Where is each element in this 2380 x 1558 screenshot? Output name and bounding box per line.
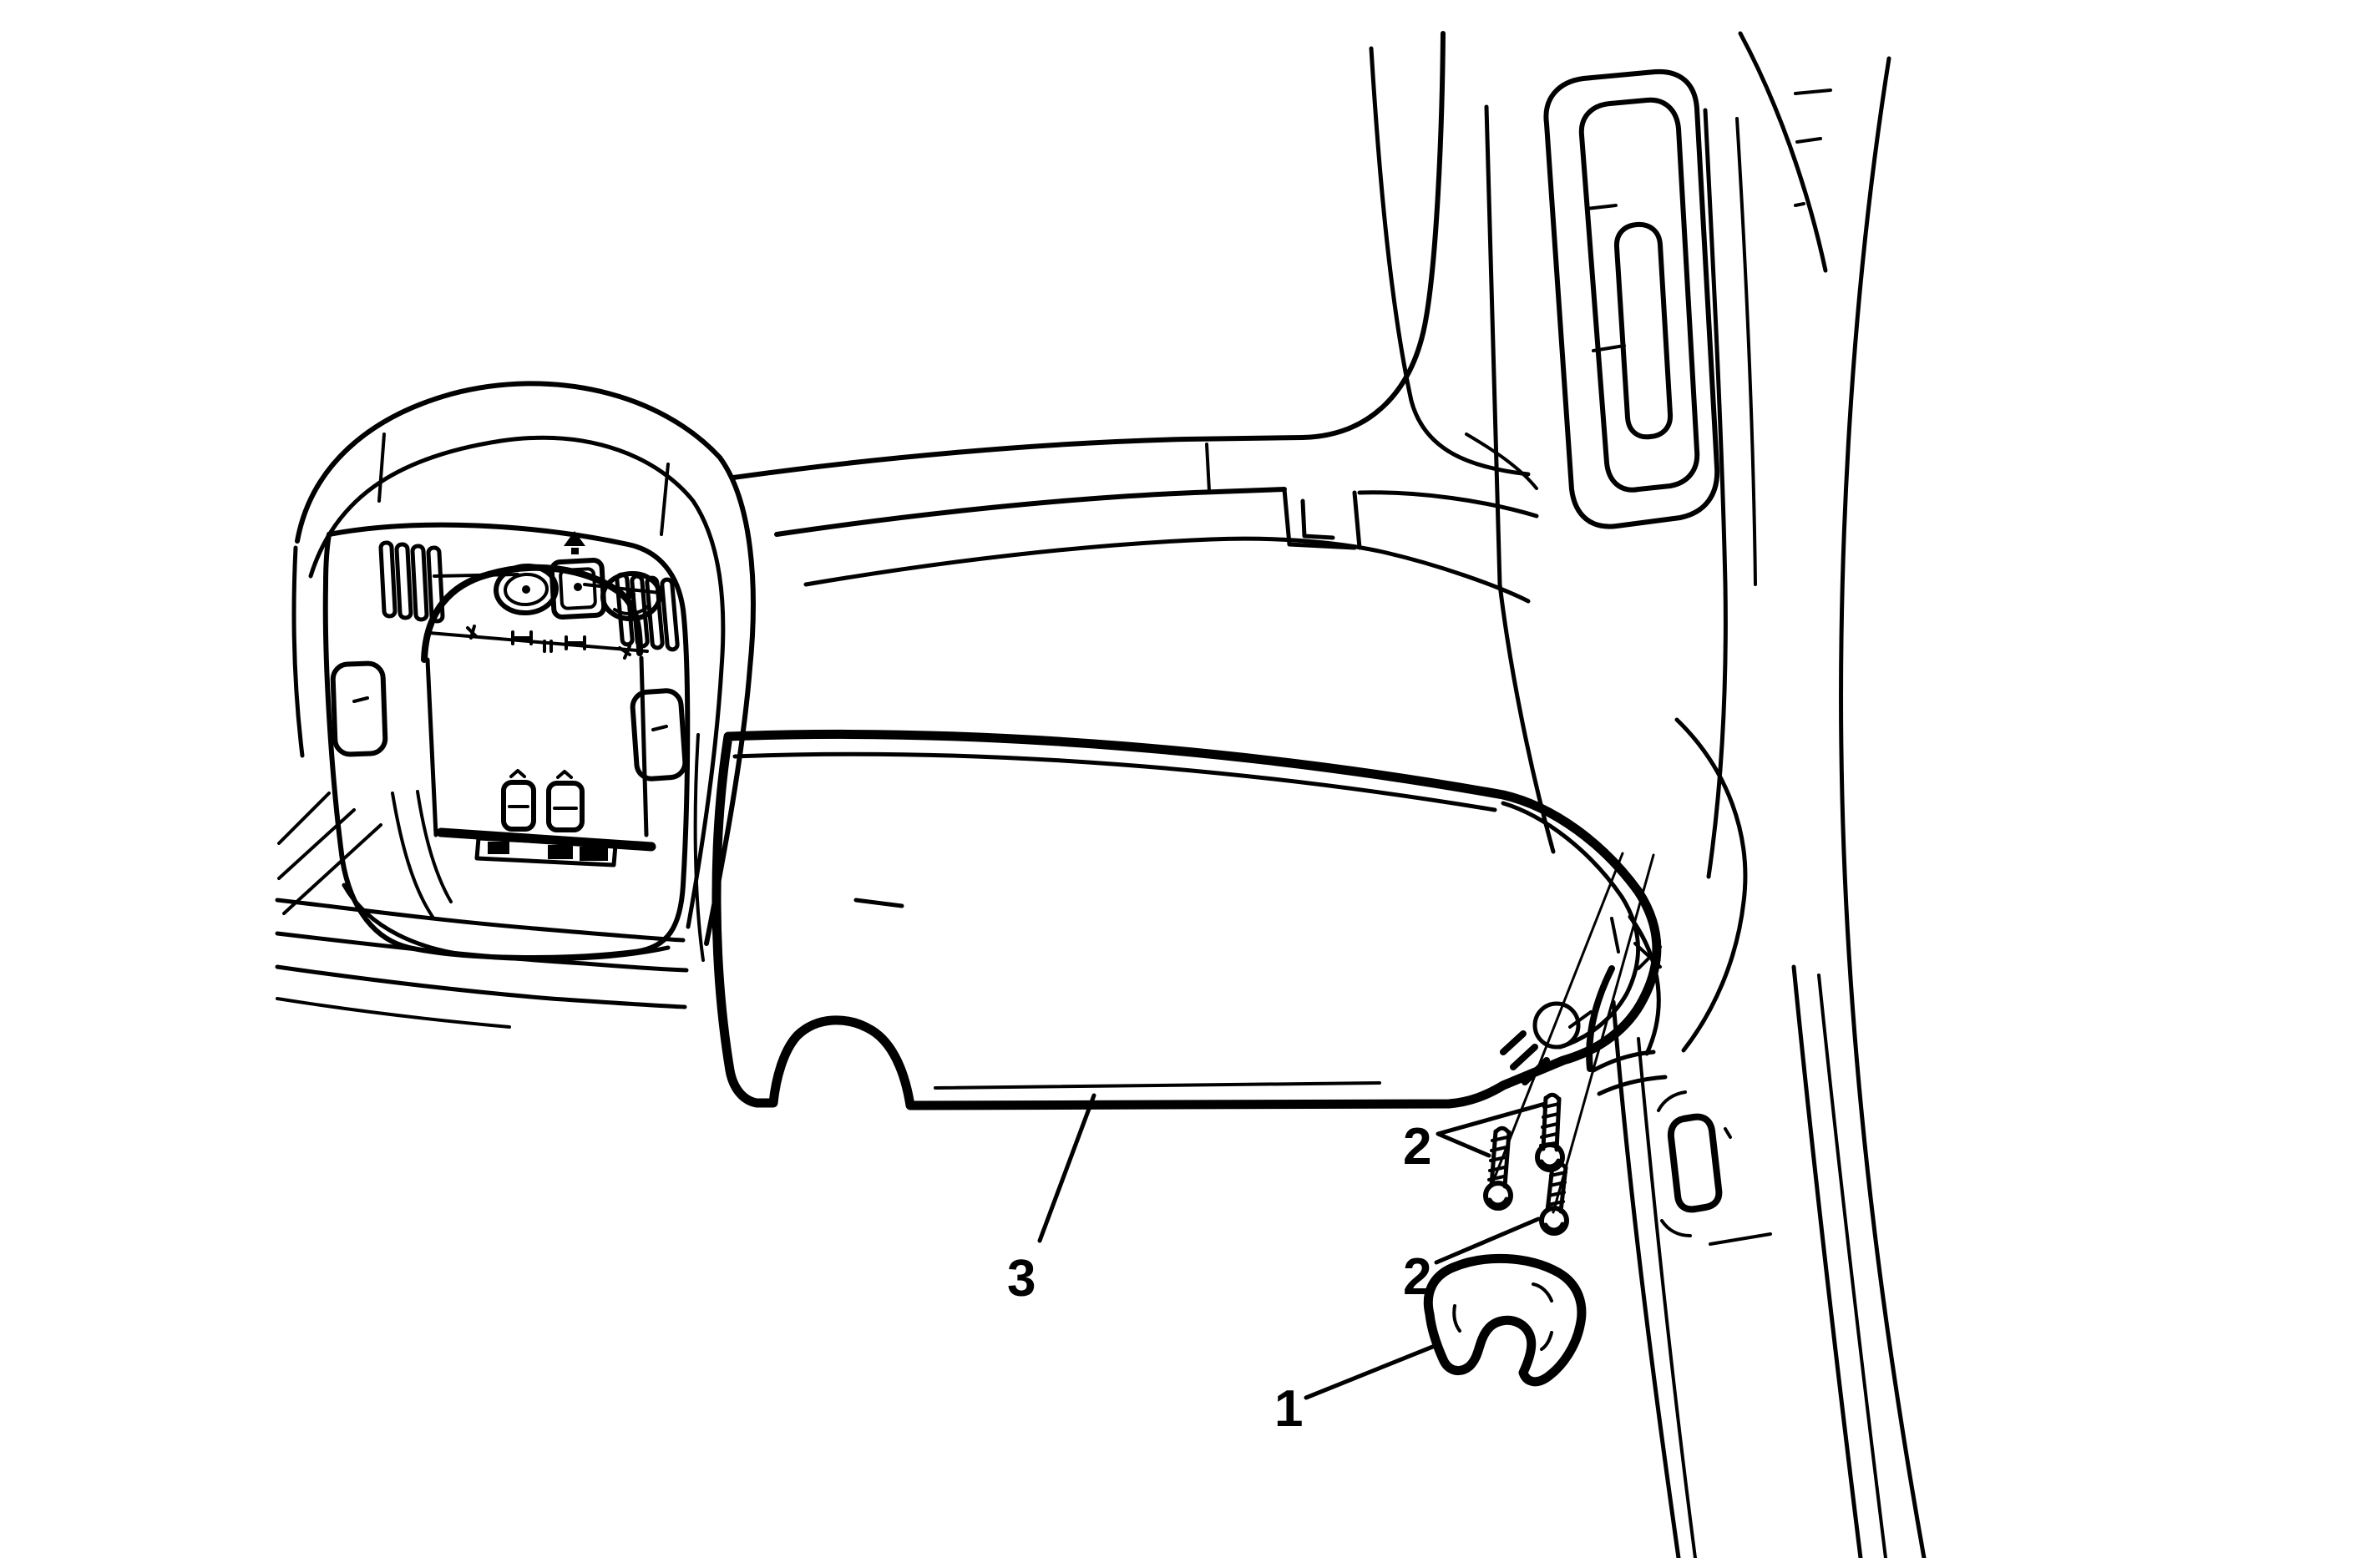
screw-axis-line-2	[1553, 855, 1653, 1212]
console-panel-right-edge	[641, 658, 646, 835]
clip-detail-arc-3	[1542, 1333, 1552, 1349]
callout-3: 3	[1007, 1095, 1094, 1308]
console-bottom-bar	[477, 838, 615, 865]
button-dot	[627, 590, 636, 599]
band-step-right	[1355, 493, 1360, 548]
bracket-hatch-2	[1513, 1047, 1535, 1067]
screw	[1486, 1128, 1511, 1208]
band-connector-tick	[1207, 444, 1209, 491]
pillar-mid-line-2	[1737, 119, 1755, 584]
bar-tab	[548, 845, 573, 859]
screw	[1542, 1163, 1567, 1233]
pillar-dash	[1710, 1234, 1770, 1244]
cutout-tick	[1725, 1129, 1730, 1137]
roof-tick-1	[379, 434, 384, 501]
switch-divider-line	[429, 633, 647, 651]
screw-head-detail	[1490, 1199, 1506, 1205]
button-dot	[522, 585, 530, 594]
vent-vane	[354, 698, 367, 701]
headliner-fold-1	[279, 793, 329, 843]
callout-2-upper-label: 2	[1403, 1118, 1431, 1176]
technical-illustration: 3 2 2 1	[0, 0, 2380, 1558]
roof-outline-inner	[311, 438, 723, 927]
header-band-top	[733, 33, 1443, 478]
pillar-anchor-cutout	[1658, 1092, 1730, 1236]
pillar-flare-outer	[1677, 720, 1745, 1050]
header-band-bottom	[777, 489, 1284, 534]
vent-grille-left	[381, 543, 443, 622]
pillar-collar-2	[1599, 1077, 1665, 1094]
callout-1: 1	[1274, 1346, 1435, 1438]
handle-bezel	[1546, 72, 1717, 527]
pillar-left-edge	[1486, 107, 1553, 852]
rocker-caret	[511, 771, 524, 776]
leader-line	[1306, 1346, 1435, 1398]
a-pillar-grab-handle	[1546, 72, 1717, 527]
headliner-sweep-1	[277, 900, 683, 940]
clip-outline	[1428, 1258, 1582, 1381]
leader-line	[1040, 1095, 1094, 1241]
band-step-left	[1284, 489, 1289, 544]
clip-detail-arc-1	[1454, 1306, 1460, 1331]
handle-hole	[1617, 225, 1670, 437]
band-bottom-right	[1360, 493, 1537, 516]
visor-retainer-clip	[1428, 1258, 1582, 1381]
callout-2-lower-label: 2	[1403, 1248, 1431, 1306]
bracket-hatch-1	[1503, 1034, 1523, 1052]
console-panel-left-edge	[428, 660, 436, 835]
screw-tip	[1546, 1095, 1559, 1100]
visor-bottom-hem	[935, 1083, 1380, 1088]
screw-head-detail	[1546, 1224, 1562, 1230]
screw-shaft-edge	[1505, 1132, 1509, 1186]
door-frame-dash-3	[1795, 204, 1804, 205]
grille-slat	[381, 543, 396, 617]
headliner-sweep-4	[277, 999, 509, 1027]
door-opening-line	[1841, 58, 1924, 1558]
door-frame-curve	[1740, 33, 1826, 271]
rocker-caret	[558, 771, 571, 777]
band-to-handle-curve	[1466, 434, 1537, 488]
cutout-arc-bottom	[1662, 1221, 1690, 1236]
screw-tip	[1496, 1128, 1509, 1133]
visor-wrap-dash-1	[1612, 918, 1618, 952]
door-frame-dash-2	[1797, 139, 1820, 142]
pillar-collar-1	[1593, 1052, 1653, 1070]
air-vent-right	[631, 690, 686, 780]
visor-top-hem	[735, 754, 1495, 810]
page: { "figure": { "background_color": "#ffff…	[0, 0, 2380, 1558]
handle-seam-1	[1587, 205, 1616, 209]
clip-detail-arc-2	[1533, 1284, 1552, 1301]
sun-visor	[717, 734, 1657, 1212]
headliner-fold-3	[284, 825, 381, 913]
callout-3-label: 3	[1007, 1250, 1036, 1308]
sunshade-installation-diagram: 3 2 2 1	[0, 0, 2380, 1558]
vent-body	[631, 690, 686, 780]
visor-outline	[717, 734, 1657, 1105]
roof-left-edge	[294, 548, 302, 756]
headliner-sweep-3	[277, 967, 685, 1007]
vent-vane	[653, 726, 666, 730]
a-pillar-upper-line	[1371, 48, 1528, 474]
grille-slat	[397, 544, 412, 619]
lower-pillar-edge-4	[1819, 975, 1886, 1558]
callout-1-label: 1	[1274, 1380, 1303, 1438]
bar-tab	[580, 847, 608, 861]
button-dot	[574, 583, 582, 591]
grille-slat	[413, 546, 428, 620]
visor-mirror-dash	[856, 900, 902, 906]
windshield-header-trim	[733, 33, 1537, 601]
overhead-console	[326, 525, 703, 960]
rocker-switches	[504, 771, 582, 830]
bar-tab	[488, 842, 509, 854]
cutout-arc-top	[1658, 1092, 1685, 1110]
vent-body	[332, 663, 386, 755]
handle-grip	[1582, 100, 1697, 490]
door-frame-dash-1	[1795, 90, 1831, 94]
leader-line-fork	[1438, 1104, 1545, 1156]
console-side-line-1	[392, 793, 433, 917]
cutout-outline	[1671, 1117, 1719, 1210]
band-lower-sweep	[806, 539, 1528, 601]
callout-2-upper: 2	[1403, 1104, 1545, 1176]
band-l-mark	[1303, 501, 1333, 538]
air-vent-left	[332, 663, 386, 755]
